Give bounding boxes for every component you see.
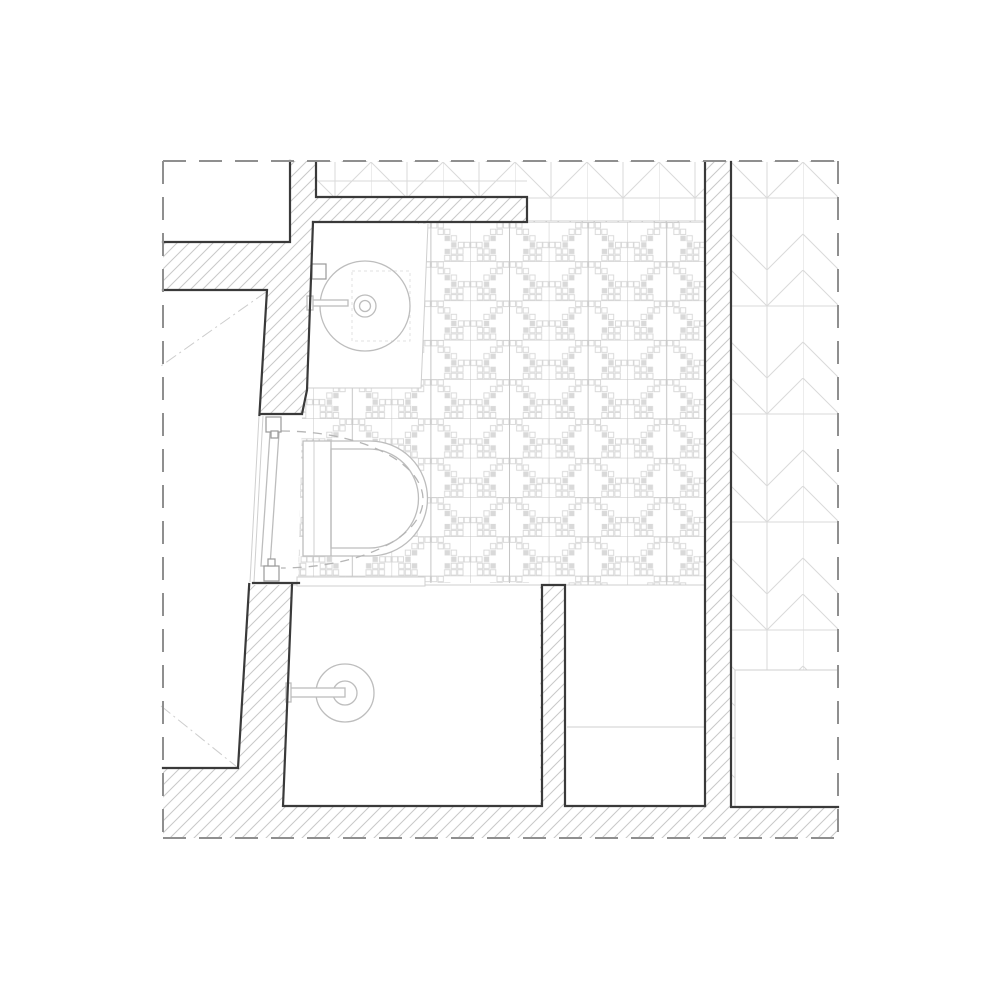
right-room-alcove <box>735 670 838 807</box>
toilet <box>303 441 428 556</box>
faucet <box>309 300 348 306</box>
threshold-strip <box>297 577 425 586</box>
room-bottom-middle <box>565 585 705 806</box>
door-hinge-top-pin <box>271 431 278 438</box>
shower-arm <box>288 688 345 697</box>
toilet-body <box>303 441 428 556</box>
door-hinge-bottom-pin <box>268 559 275 566</box>
door-hinge-bottom <box>264 566 279 581</box>
washbasin-counter <box>306 221 428 388</box>
floor-plan-page <box>0 0 1000 1000</box>
floor-plan-drawing <box>0 0 1000 1000</box>
door-hinge-top <box>266 417 281 432</box>
room-top-left <box>163 161 290 242</box>
wall-control-box <box>312 264 326 279</box>
